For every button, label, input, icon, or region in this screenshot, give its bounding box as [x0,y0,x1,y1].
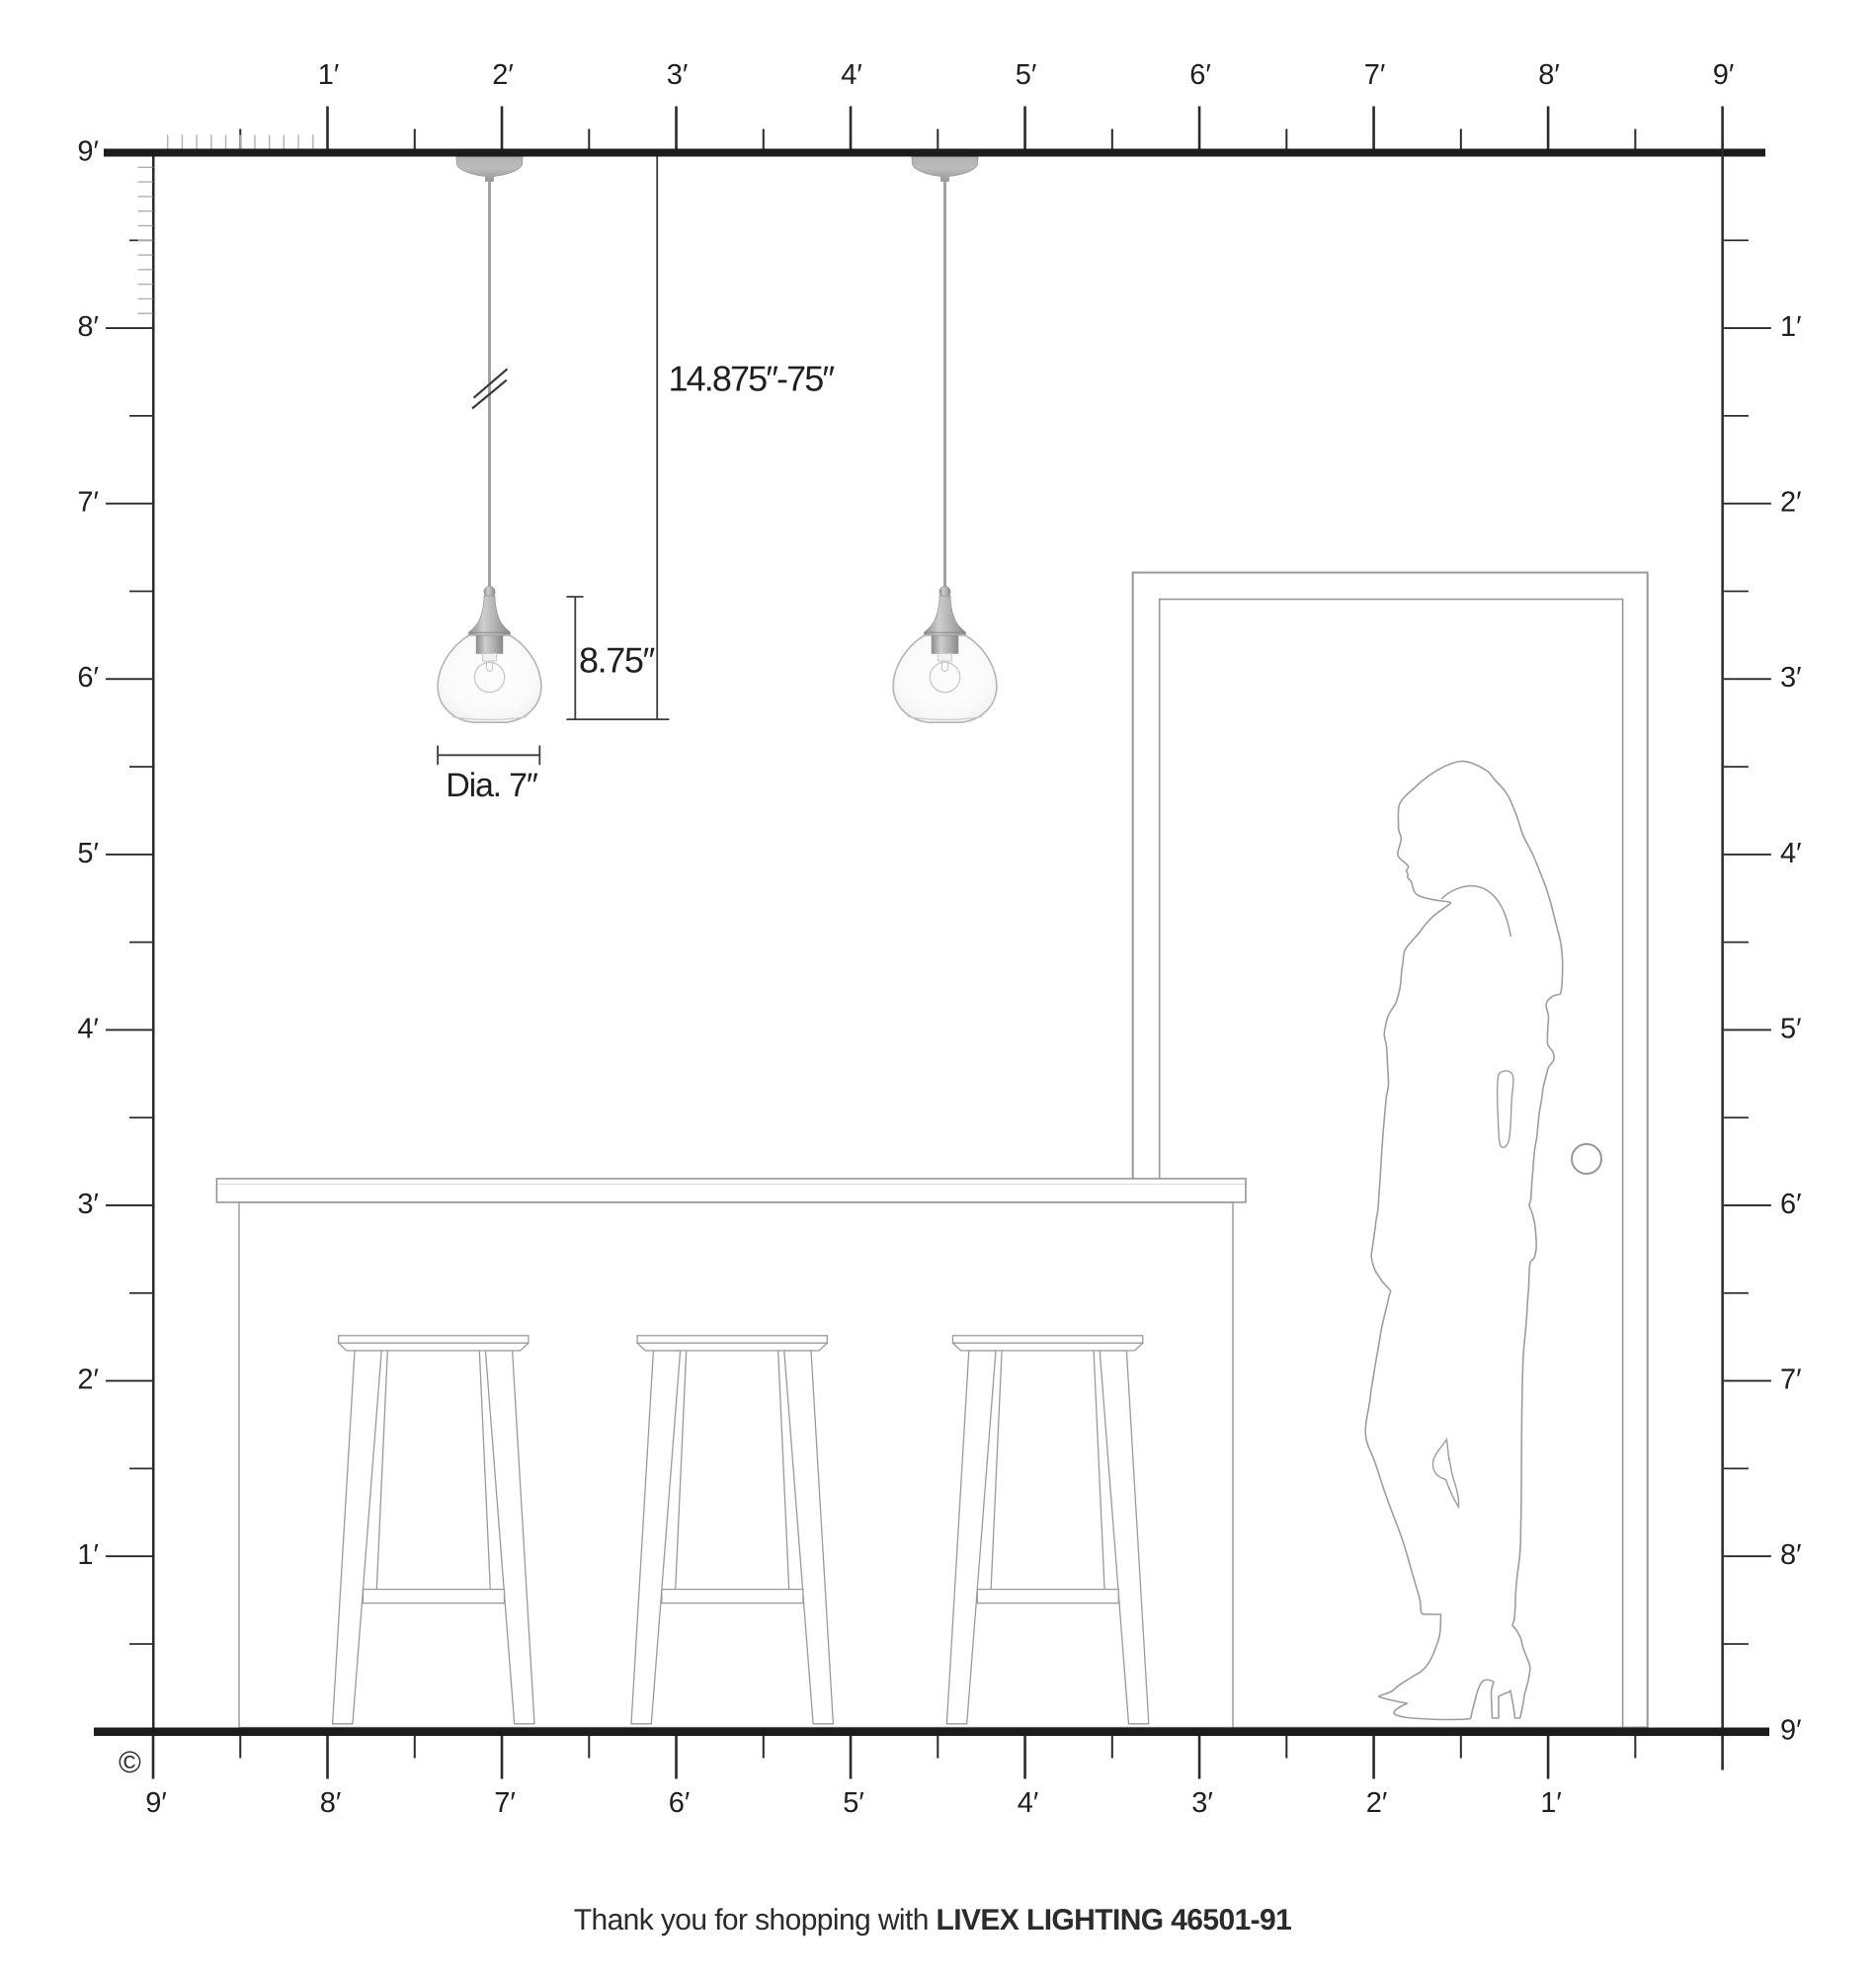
svg-text:5′: 5′ [1016,59,1037,91]
svg-text:8′: 8′ [320,1787,342,1819]
svg-text:5′: 5′ [843,1787,864,1819]
svg-text:3′: 3′ [77,1189,99,1220]
svg-text:9′: 9′ [145,1787,167,1819]
svg-text:4′: 4′ [1780,838,1802,869]
svg-text:9′: 9′ [1780,1715,1802,1747]
svg-text:14.875″-75″: 14.875″-75″ [669,359,836,399]
svg-text:Dia. 7″: Dia. 7″ [446,767,538,804]
svg-text:3′: 3′ [667,59,689,91]
svg-text:5′: 5′ [1780,1013,1802,1044]
svg-text:7′: 7′ [1780,1364,1802,1396]
svg-text:7′: 7′ [494,1787,516,1819]
svg-text:1′: 1′ [1540,1787,1562,1819]
svg-text:8.75″: 8.75″ [579,640,655,681]
svg-text:8′: 8′ [1780,1539,1802,1571]
svg-text:7′: 7′ [77,487,99,519]
svg-text:8′: 8′ [1538,59,1560,91]
svg-text:8′: 8′ [77,311,99,343]
svg-text:©: © [119,1745,141,1779]
svg-text:1′: 1′ [1780,311,1802,343]
svg-text:9′: 9′ [77,136,99,168]
svg-text:6′: 6′ [1780,1189,1802,1220]
svg-text:2′: 2′ [77,1364,99,1396]
svg-text:2′: 2′ [1780,487,1802,519]
svg-text:3′: 3′ [1191,1787,1213,1819]
svg-text:1′: 1′ [77,1539,99,1571]
svg-text:6′: 6′ [1189,59,1211,91]
svg-text:5′: 5′ [77,838,99,869]
svg-text:4′: 4′ [77,1013,99,1044]
svg-text:4′: 4′ [1018,1787,1039,1819]
svg-text:2′: 2′ [492,59,514,91]
svg-text:3′: 3′ [1780,662,1802,694]
svg-text:7′: 7′ [1364,59,1386,91]
svg-text:Thank you for shopping with LI: Thank you for shopping with LIVEX LIGHTI… [574,1904,1291,1936]
svg-text:2′: 2′ [1366,1787,1388,1819]
svg-text:9′: 9′ [1713,59,1735,91]
svg-text:6′: 6′ [77,662,99,694]
svg-text:4′: 4′ [841,59,862,91]
svg-text:1′: 1′ [318,59,340,91]
svg-text:6′: 6′ [669,1787,691,1819]
